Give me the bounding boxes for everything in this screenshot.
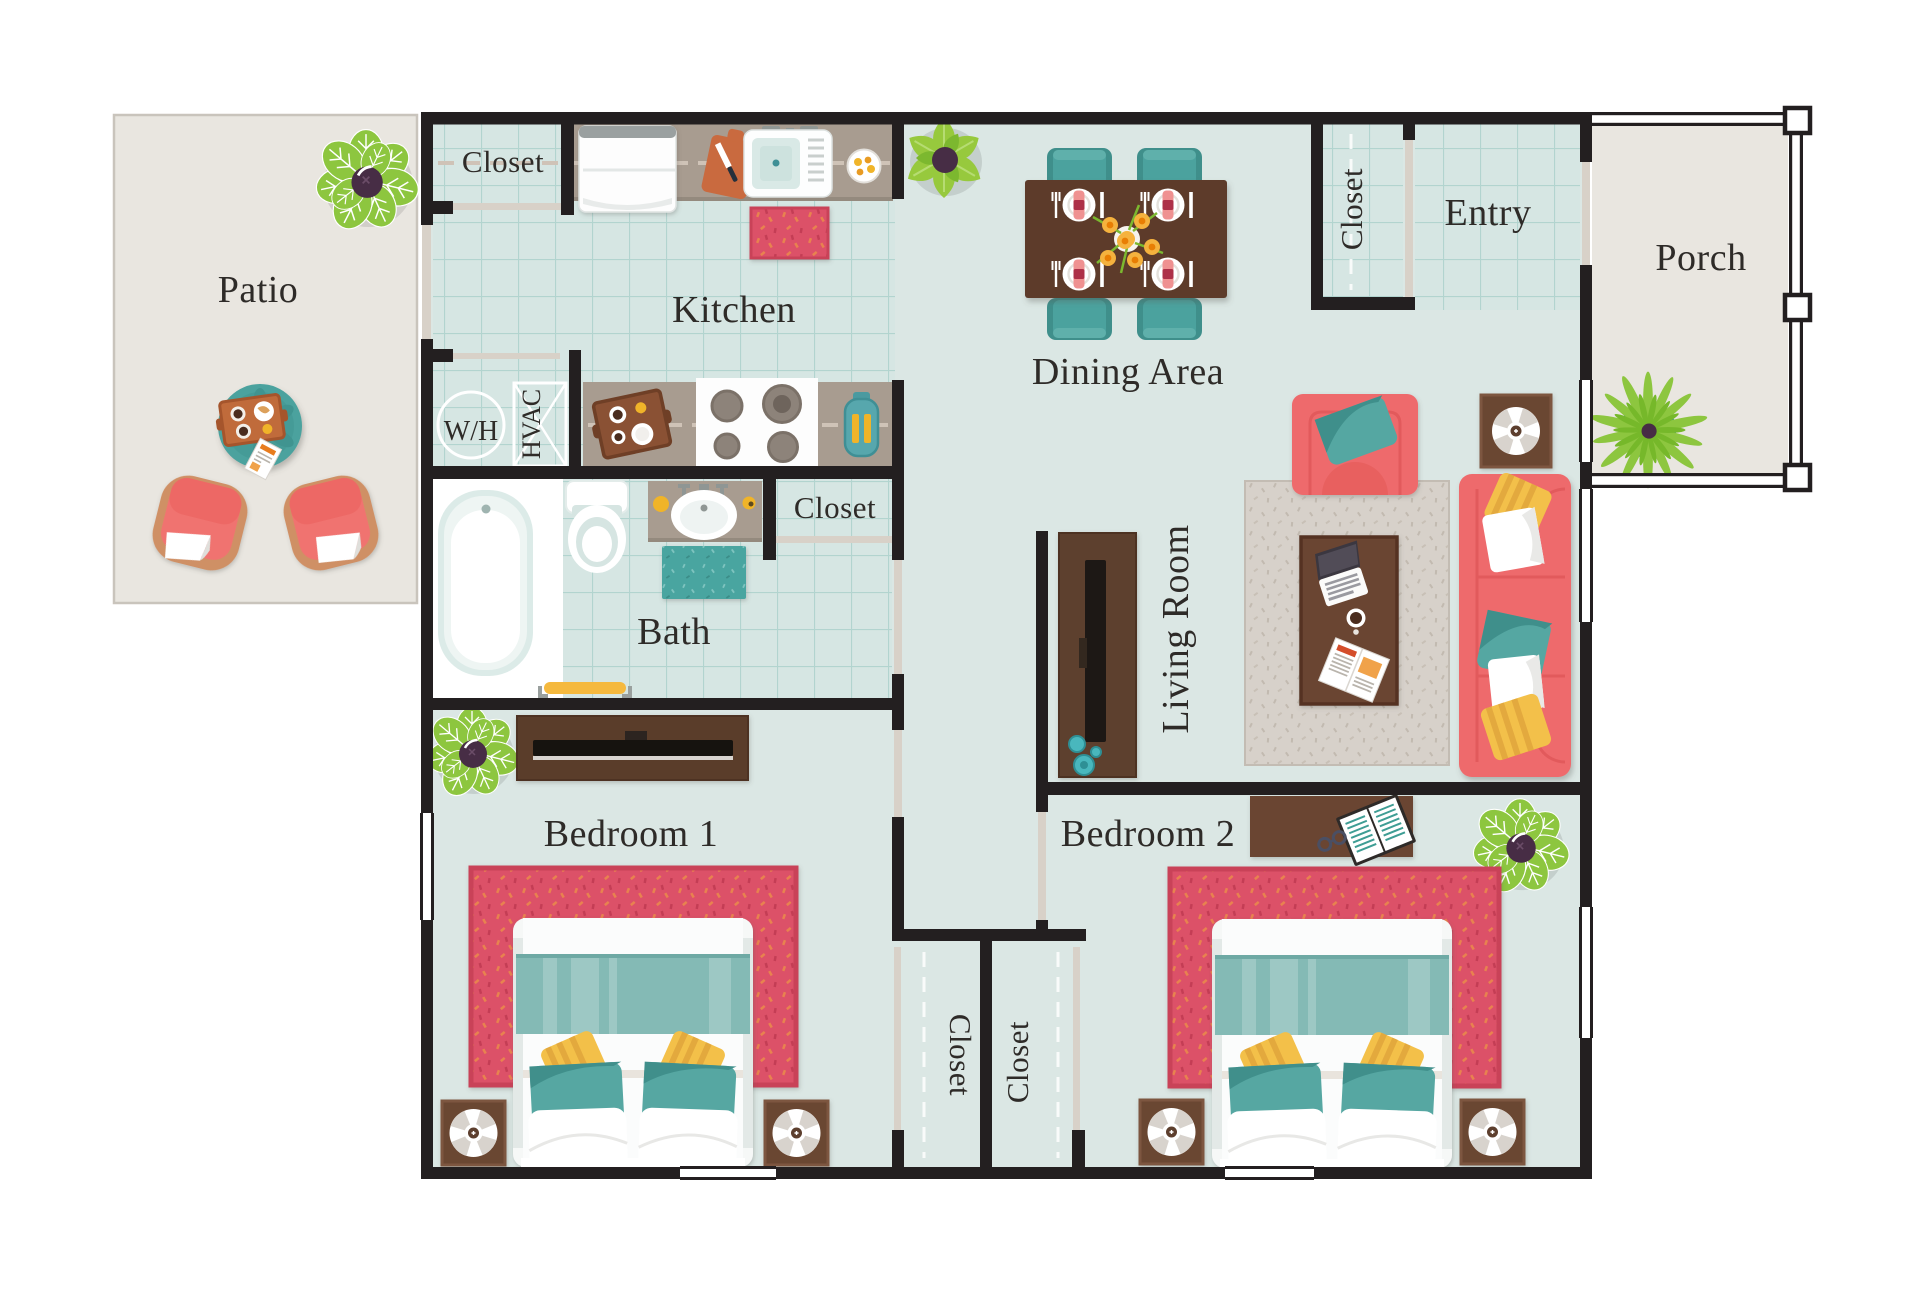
- svg-text:Dining Area: Dining Area: [1032, 351, 1224, 393]
- svg-text:Bath: Bath: [637, 611, 711, 653]
- svg-text:Bedroom 2: Bedroom 2: [1061, 813, 1235, 855]
- svg-text:HVAC: HVAC: [517, 389, 546, 459]
- svg-text:Bedroom 1: Bedroom 1: [544, 813, 718, 855]
- svg-text:Porch: Porch: [1655, 237, 1746, 279]
- svg-text:Entry: Entry: [1445, 192, 1532, 234]
- svg-text:W/H: W/H: [444, 416, 498, 447]
- svg-text:Living Room: Living Room: [1155, 524, 1197, 733]
- svg-text:Closet: Closet: [943, 1014, 978, 1096]
- svg-text:Kitchen: Kitchen: [672, 289, 796, 331]
- svg-text:Closet: Closet: [794, 490, 876, 525]
- svg-text:Closet: Closet: [1334, 168, 1369, 250]
- svg-text:Closet: Closet: [1000, 1021, 1035, 1103]
- svg-text:Patio: Patio: [218, 269, 299, 311]
- svg-text:Closet: Closet: [462, 144, 544, 179]
